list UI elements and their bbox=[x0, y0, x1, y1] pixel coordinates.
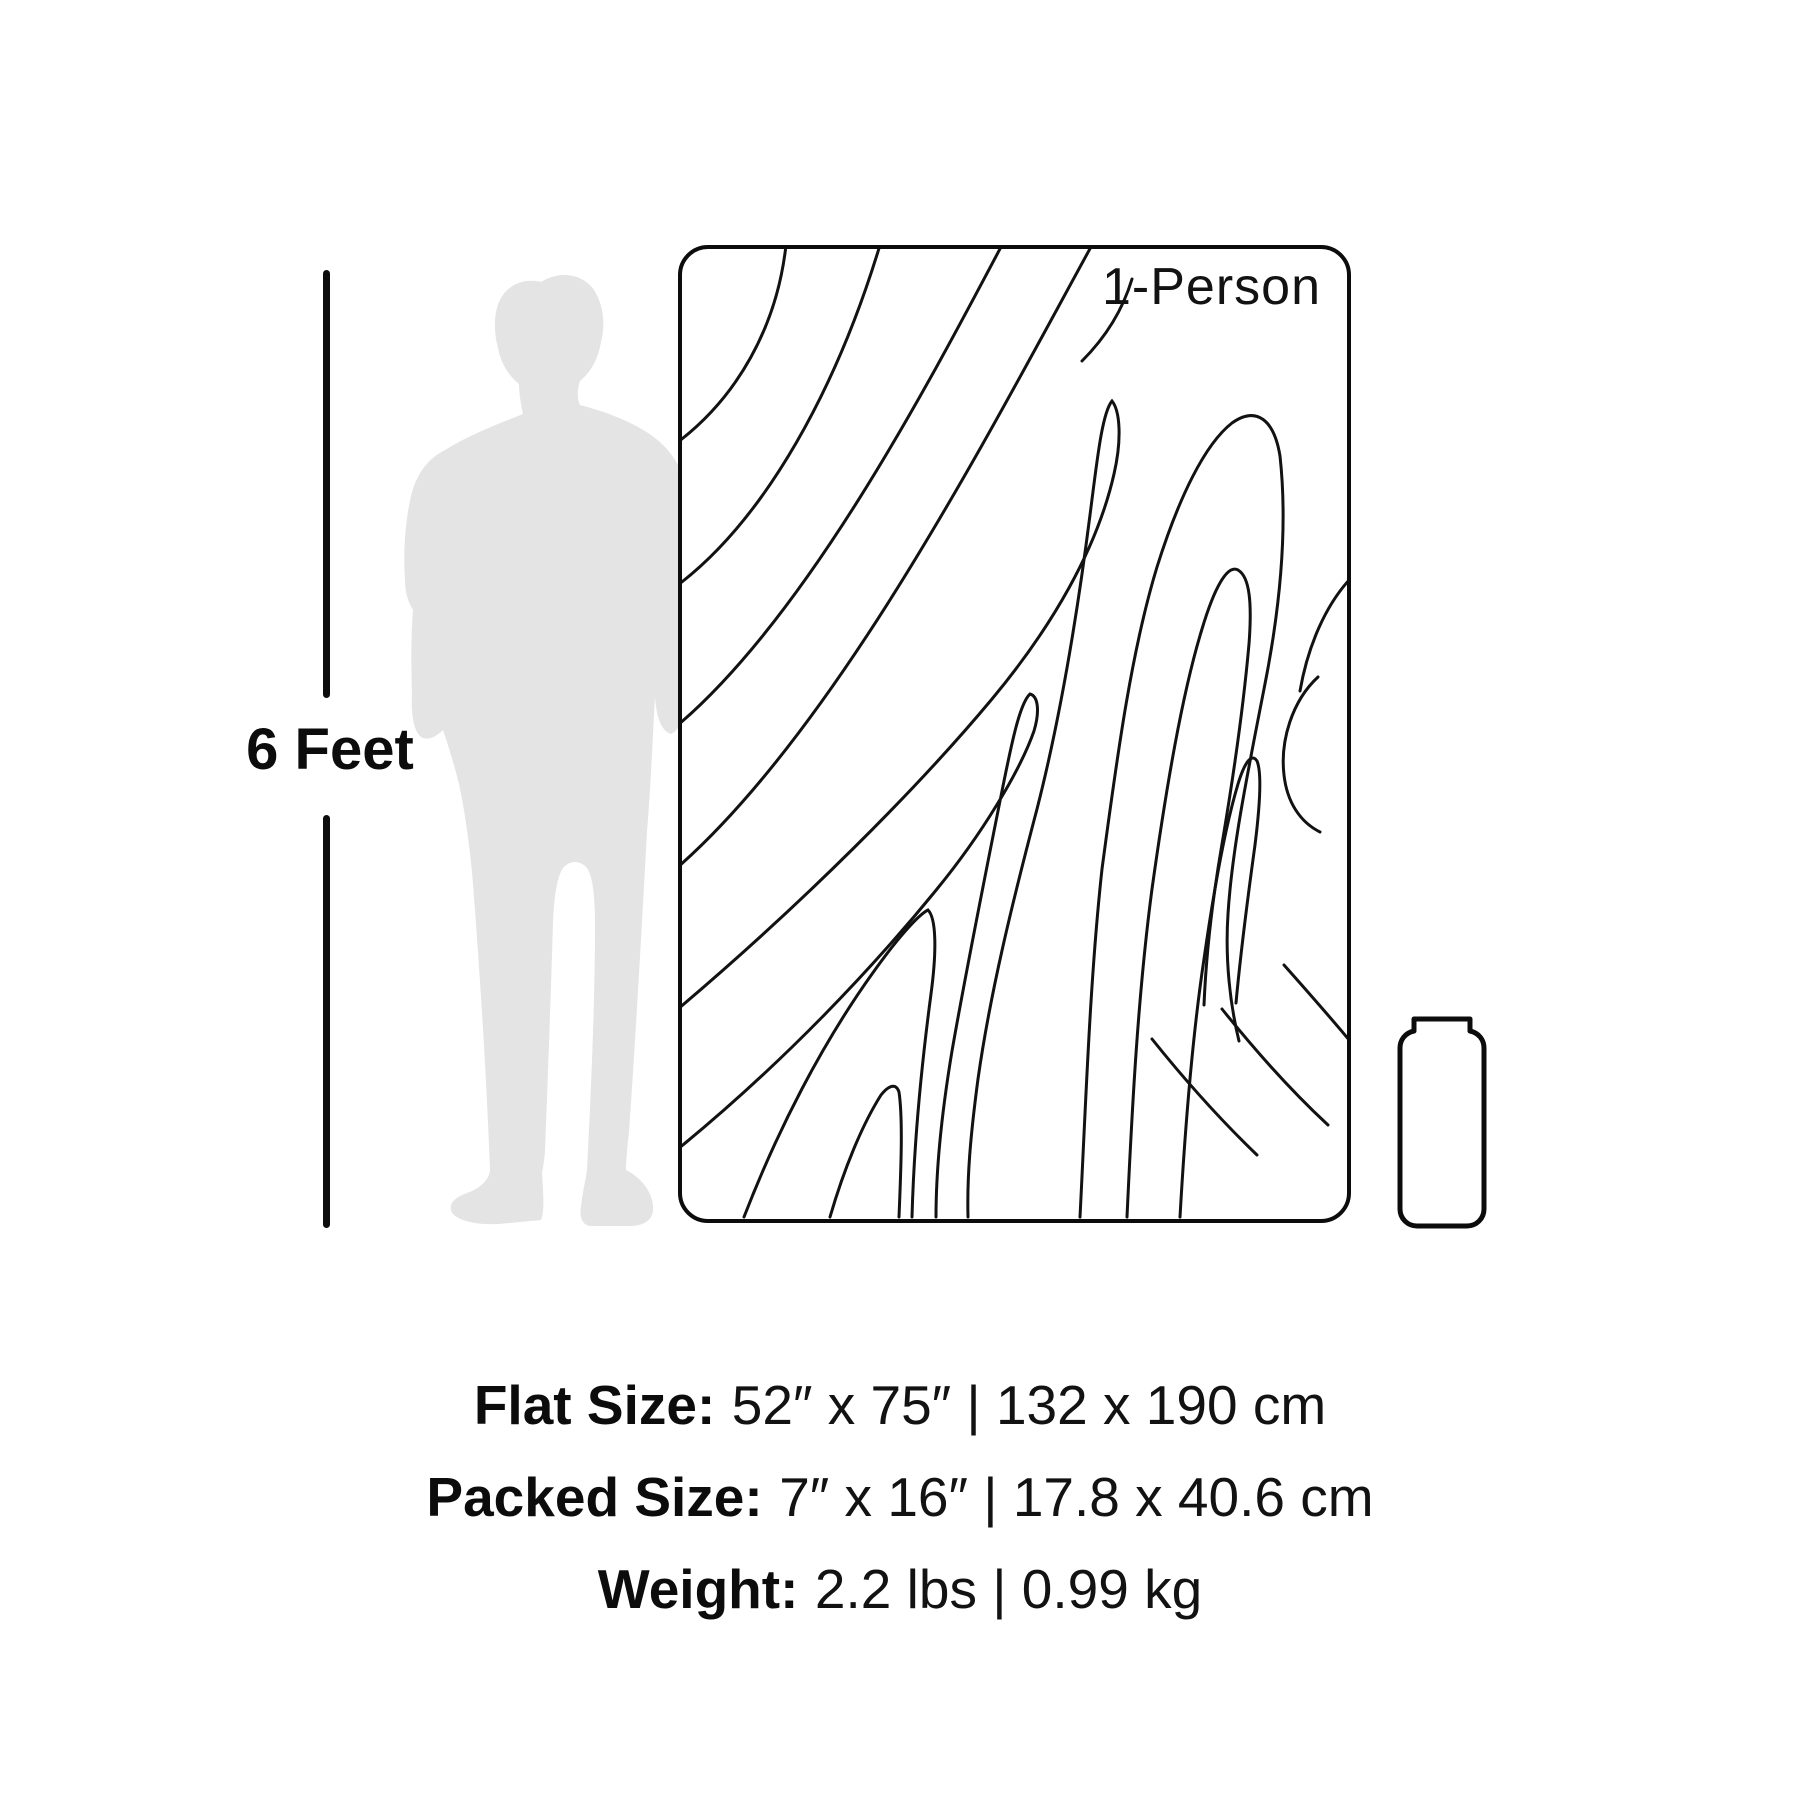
spec-row-packed-size: Packed Size: 7″ x 16″ | 17.8 x 40.6 cm bbox=[0, 1451, 1800, 1543]
flat-size-label: Flat Size: bbox=[474, 1373, 715, 1437]
weight-label: Weight: bbox=[598, 1557, 799, 1621]
capacity-label: 1-Person bbox=[1102, 261, 1321, 313]
flat-size-value: 52″ x 75″ | 132 x 190 cm bbox=[732, 1373, 1326, 1437]
ruler-line-bottom bbox=[323, 815, 330, 1228]
packed-bag-icon bbox=[1393, 1016, 1491, 1229]
blanket-outline: 1-Person bbox=[678, 245, 1351, 1223]
contour-line bbox=[682, 694, 1037, 1217]
contour-line bbox=[682, 249, 880, 585]
contour-line bbox=[1080, 416, 1283, 1217]
height-label: 6 Feet bbox=[246, 716, 414, 783]
person-silhouette bbox=[395, 272, 705, 1232]
ruler-line-top bbox=[323, 270, 330, 698]
contour-line bbox=[682, 249, 1092, 867]
contour-line bbox=[830, 1086, 901, 1217]
specs-block: Flat Size: 52″ x 75″ | 132 x 190 cm Pack… bbox=[0, 1359, 1800, 1635]
contour-line bbox=[1222, 1009, 1328, 1125]
size-comparison-diagram: 6 Feet 1-Person bbox=[0, 0, 1800, 1800]
contour-line bbox=[1283, 677, 1320, 832]
contour-line bbox=[1300, 579, 1347, 691]
contour-line bbox=[1127, 569, 1250, 1217]
weight-value: 2.2 lbs | 0.99 kg bbox=[815, 1557, 1202, 1621]
packed-bag-shape bbox=[1400, 1019, 1484, 1226]
contour-line bbox=[744, 910, 935, 1217]
spec-row-weight: Weight: 2.2 lbs | 0.99 kg bbox=[0, 1543, 1800, 1635]
packed-size-value: 7″ x 16″ | 17.8 x 40.6 cm bbox=[779, 1465, 1373, 1529]
packed-size-label: Packed Size: bbox=[426, 1465, 762, 1529]
topo-pattern bbox=[682, 249, 1347, 1219]
spec-row-flat-size: Flat Size: 52″ x 75″ | 132 x 190 cm bbox=[0, 1359, 1800, 1451]
contour-line bbox=[1152, 1039, 1257, 1155]
contour-line bbox=[682, 249, 786, 442]
contour-line bbox=[682, 249, 1002, 725]
contour-line bbox=[1284, 965, 1347, 1041]
person-silhouette-shape bbox=[404, 275, 693, 1226]
